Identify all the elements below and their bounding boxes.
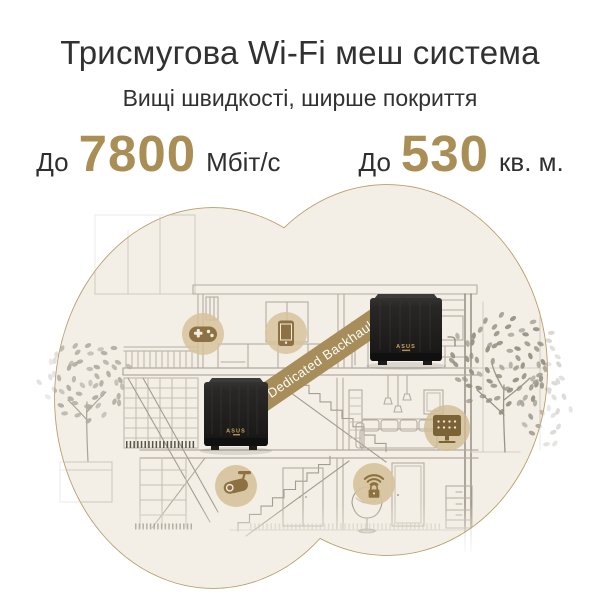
router-node-lower: ASUS xyxy=(200,378,272,455)
smartphone-icon xyxy=(265,312,307,354)
stat-coverage-prefix: До xyxy=(359,147,391,178)
header: Трисмугова Wi-Fi меш система Вищі швидко… xyxy=(0,0,600,179)
surveillance-camera-icon xyxy=(215,465,257,507)
router-logo-lower: ASUS xyxy=(226,429,246,435)
gamepad-icon xyxy=(182,313,224,355)
stat-speed-unit: Мбіт/с xyxy=(206,147,280,178)
page-subtitle: Вищі швидкості, ширше покриття xyxy=(0,85,600,112)
stat-speed-value: 7800 xyxy=(79,128,196,179)
stats-row: До 7800 Мбіт/с До 530 кв. м. xyxy=(0,128,600,179)
hero-banner: Трисмугова Wi-Fi меш система Вищі швидко… xyxy=(0,0,600,600)
stat-speed: До 7800 Мбіт/с xyxy=(36,128,280,179)
router-node-upper: ASUS xyxy=(366,294,446,370)
stat-coverage-unit: кв. м. xyxy=(499,147,564,178)
smart-home-panel-icon xyxy=(424,405,470,451)
stat-coverage: До 530 кв. м. xyxy=(359,128,564,179)
router-logo-upper: ASUS xyxy=(396,344,416,350)
stat-speed-prefix: До xyxy=(36,147,68,178)
secure-wifi-icon xyxy=(353,463,395,505)
page-title: Трисмугова Wi-Fi меш система xyxy=(0,34,600,72)
stat-coverage-value: 530 xyxy=(401,128,489,179)
